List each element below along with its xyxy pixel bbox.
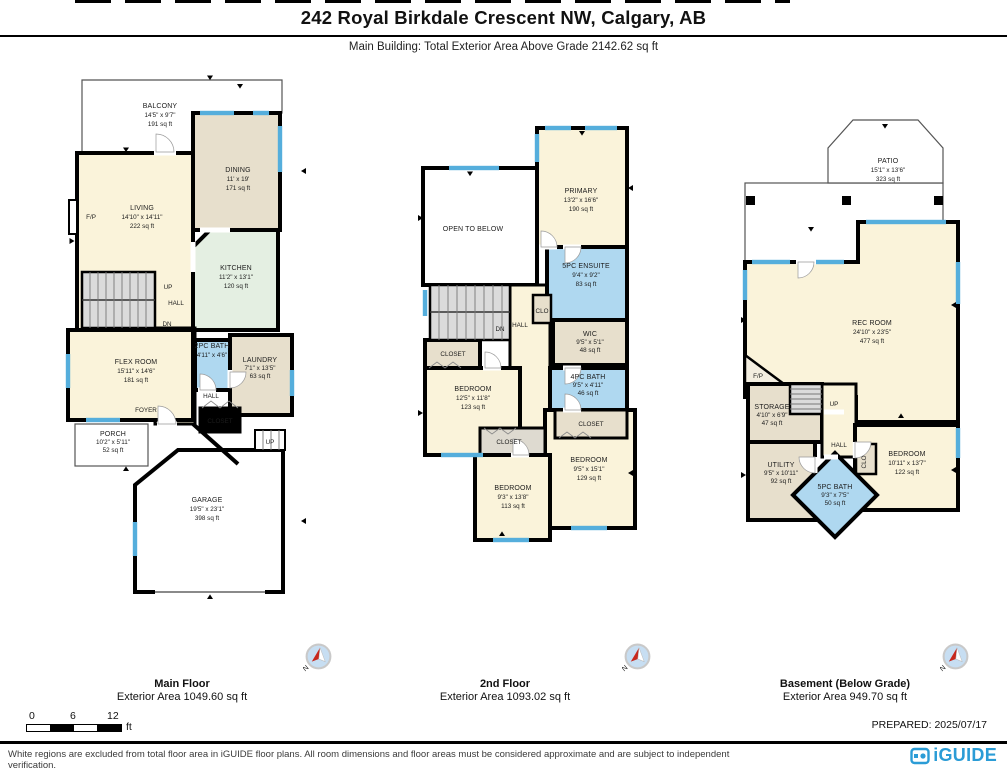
room-area-dining: 171 sq ft	[226, 185, 250, 192]
room-area-bed2: 129 sq ft	[577, 475, 601, 482]
open-to-below-label: OPEN TO BELOW	[443, 226, 504, 233]
clo-label: CLO	[536, 308, 549, 315]
hall-label-lower: HALL	[203, 393, 219, 400]
room-dims-bed3: 9'3" x 13'8"	[497, 494, 528, 501]
room-dims-4pc-bath: 9'5" x 4'11"	[573, 382, 604, 389]
room-dims-laundry: 7'1" x 13'5"	[244, 365, 275, 372]
scale-tick-12: 12	[107, 710, 119, 722]
page-subtitle: Main Building: Total Exterior Area Above…	[0, 41, 1007, 53]
floor-name: Basement (Below Grade)	[730, 678, 960, 691]
scale-tick-6: 6	[70, 710, 76, 722]
room-area-rec: 477 sq ft	[860, 338, 884, 345]
room-area-balcony: 191 sq ft	[148, 121, 172, 128]
main-floor-stairs	[82, 272, 155, 328]
floor-name: Main Floor	[67, 678, 297, 691]
hall-label: HALL	[512, 322, 528, 329]
compass-2nd-floor: N	[622, 642, 653, 673]
room-label-dining: DINING	[225, 167, 250, 174]
room-area-bed3: 113 sq ft	[501, 503, 525, 510]
basement-plan: PATIO 15'1" x 13'6" 323 sq ft REC ROOM 2…	[738, 112, 966, 552]
room-label-bed: BEDROOM	[888, 451, 925, 458]
room-label-porch: PORCH	[100, 431, 126, 438]
page-title: 242 Royal Birkdale Crescent NW, Calgary,…	[0, 7, 1007, 29]
room-label-wic: WIC	[583, 331, 597, 338]
room-area-garage: 398 sq ft	[195, 515, 219, 522]
compass-basement: N	[940, 642, 971, 673]
room-area-flex: 181 sq ft	[124, 377, 148, 384]
room-label-garage: GARAGE	[192, 497, 223, 504]
room-label-living: LIVING	[130, 205, 154, 212]
iguide-logo-text: iGUIDE	[933, 745, 997, 766]
caption-main-floor: Main Floor Exterior Area 1049.60 sq ft	[67, 678, 297, 704]
fireplace-label: F/P	[753, 373, 763, 380]
main-floor-plan: BALCONY 14'5" x 9'7" 191 sq ft LIVING 14…	[60, 72, 310, 632]
room-dims-garage: 19'5" x 23'1"	[190, 506, 225, 513]
room-dims-rec: 24'10" x 23'5"	[853, 329, 891, 336]
room-area-primary: 190 sq ft	[569, 206, 593, 213]
floor-area: Exterior Area 1093.02 sq ft	[390, 691, 620, 704]
fireplace-label: F/P	[86, 214, 96, 221]
closet-left-label: CLOSET	[440, 351, 465, 358]
second-floor-plan: OPEN TO BELOW PRIMARY 13'2" x 16'6" 190 …	[415, 100, 640, 545]
floor-name: 2nd Floor	[390, 678, 620, 691]
caption-2nd-floor: 2nd Floor Exterior Area 1093.02 sq ft	[390, 678, 620, 704]
stairs-dn-label: DN	[495, 326, 505, 333]
room-dims-primary: 13'2" x 16'6"	[564, 197, 599, 204]
room-dims-flex: 15'11" x 14'6"	[117, 368, 155, 375]
top-page-edge-marks	[75, 0, 790, 3]
room-label-utility: UTILITY	[767, 462, 794, 469]
room-area-5pc-bath: 50 sq ft	[825, 500, 846, 507]
closet-label: CLOSET	[207, 418, 232, 425]
stairs-dn-label: DN	[162, 321, 172, 328]
room-flex	[68, 330, 193, 420]
room-area-ensuite: 83 sq ft	[576, 281, 597, 288]
closet-mid-label: CLOSET	[496, 439, 521, 446]
room-area-bed: 122 sq ft	[895, 469, 919, 476]
room-area-storage: 47 sq ft	[762, 420, 783, 427]
room-area-patio: 323 sq ft	[876, 176, 900, 183]
room-dims-utility: 9'5" x 10'11"	[764, 470, 798, 477]
room-area-porch: 52 sq ft	[103, 447, 124, 454]
hall-label-upper: HALL	[168, 300, 184, 307]
foyer-label: FOYER	[135, 407, 157, 414]
room-label-bed2: BEDROOM	[570, 457, 607, 464]
room-label-4pc-bath: 4PC BATH	[571, 374, 606, 381]
room-label-2pc-bath: 2PC BATH	[195, 343, 230, 350]
title-divider	[0, 35, 1007, 37]
room-area-kitchen: 120 sq ft	[224, 283, 248, 290]
room-label-bed1: BEDROOM	[454, 386, 491, 393]
room-label-flex: FLEX ROOM	[115, 359, 158, 366]
clo-label: CLO	[861, 455, 868, 468]
main-floor-walls	[68, 80, 292, 592]
room-dims-living: 14'10" x 14'11"	[121, 214, 162, 221]
room-dims-storage: 4'10" x 6'9"	[756, 412, 787, 419]
room-area-wic: 48 sq ft	[580, 347, 601, 354]
room-label-balcony: BALCONY	[143, 103, 178, 110]
room-label-rec: REC ROOM	[852, 320, 892, 327]
footer-divider	[0, 741, 1007, 744]
hall-label: HALL	[831, 442, 847, 449]
fireplace	[69, 200, 77, 234]
room-dims-bed: 10'11" x 13'7"	[888, 460, 926, 467]
room-label-bed3: BEDROOM	[494, 485, 531, 492]
room-area-living: 222 sq ft	[130, 223, 154, 230]
iguide-logo-icon	[910, 747, 930, 765]
caption-basement: Basement (Below Grade) Exterior Area 949…	[730, 678, 960, 704]
room-area-4pc-bath: 46 sq ft	[578, 390, 599, 397]
room-area-bed1: 123 sq ft	[461, 404, 485, 411]
room-label-primary: PRIMARY	[565, 188, 598, 195]
garage-up-label: UP	[266, 439, 275, 446]
scale-bar-segments	[26, 724, 122, 732]
room-dims-wic: 9'5" x 5'1"	[576, 339, 604, 346]
floor-area: Exterior Area 949.70 sq ft	[730, 691, 960, 704]
room-label-storage: STORAGE	[754, 404, 789, 411]
room-dims-patio: 15'1" x 13'6"	[871, 167, 906, 174]
stairs-up-label: UP	[830, 401, 839, 408]
prepared-date: PREPARED: 2025/07/17	[872, 719, 987, 731]
iguide-logo: iGUIDE	[910, 745, 997, 766]
closet-right-label: CLOSET	[578, 421, 603, 428]
scale-bar: 0 6 12 ft	[26, 710, 156, 736]
room-dims-bed1: 12'5" x 11'8"	[456, 395, 490, 402]
scale-unit: ft	[126, 721, 132, 733]
room-label-patio: PATIO	[878, 158, 899, 165]
room-dims-porch: 10'2" x 5'11"	[96, 439, 130, 446]
room-dims-dining: 11' x 19'	[227, 176, 250, 183]
room-label-5pc-bath: 5PC BATH	[818, 484, 853, 491]
room-dims-2pc-bath: 4'11" x 4'6"	[197, 352, 228, 359]
room-dims-balcony: 14'5" x 9'7"	[144, 112, 175, 119]
room-area-laundry: 63 sq ft	[250, 373, 271, 380]
room-dims-5pc-bath: 9'3" x 7'5"	[821, 492, 849, 499]
compass-main-floor: N	[303, 642, 334, 673]
room-dims-kitchen: 11'2" x 13'1"	[219, 274, 253, 281]
room-area-utility: 92 sq ft	[771, 478, 792, 485]
room-label-kitchen: KITCHEN	[220, 265, 252, 272]
basement-stairs	[790, 384, 822, 414]
room-label-ensuite: 5PC ENSUITE	[562, 263, 610, 270]
room-label-laundry: LAUNDRY	[243, 357, 278, 364]
scale-tick-0: 0	[29, 710, 35, 722]
room-dims-bed2: 9'5" x 15'1"	[573, 466, 604, 473]
stairs-up-label: UP	[164, 284, 173, 291]
room-dims-ensuite: 9'4" x 9'2"	[572, 272, 600, 279]
floor-area: Exterior Area 1049.60 sq ft	[67, 691, 297, 704]
